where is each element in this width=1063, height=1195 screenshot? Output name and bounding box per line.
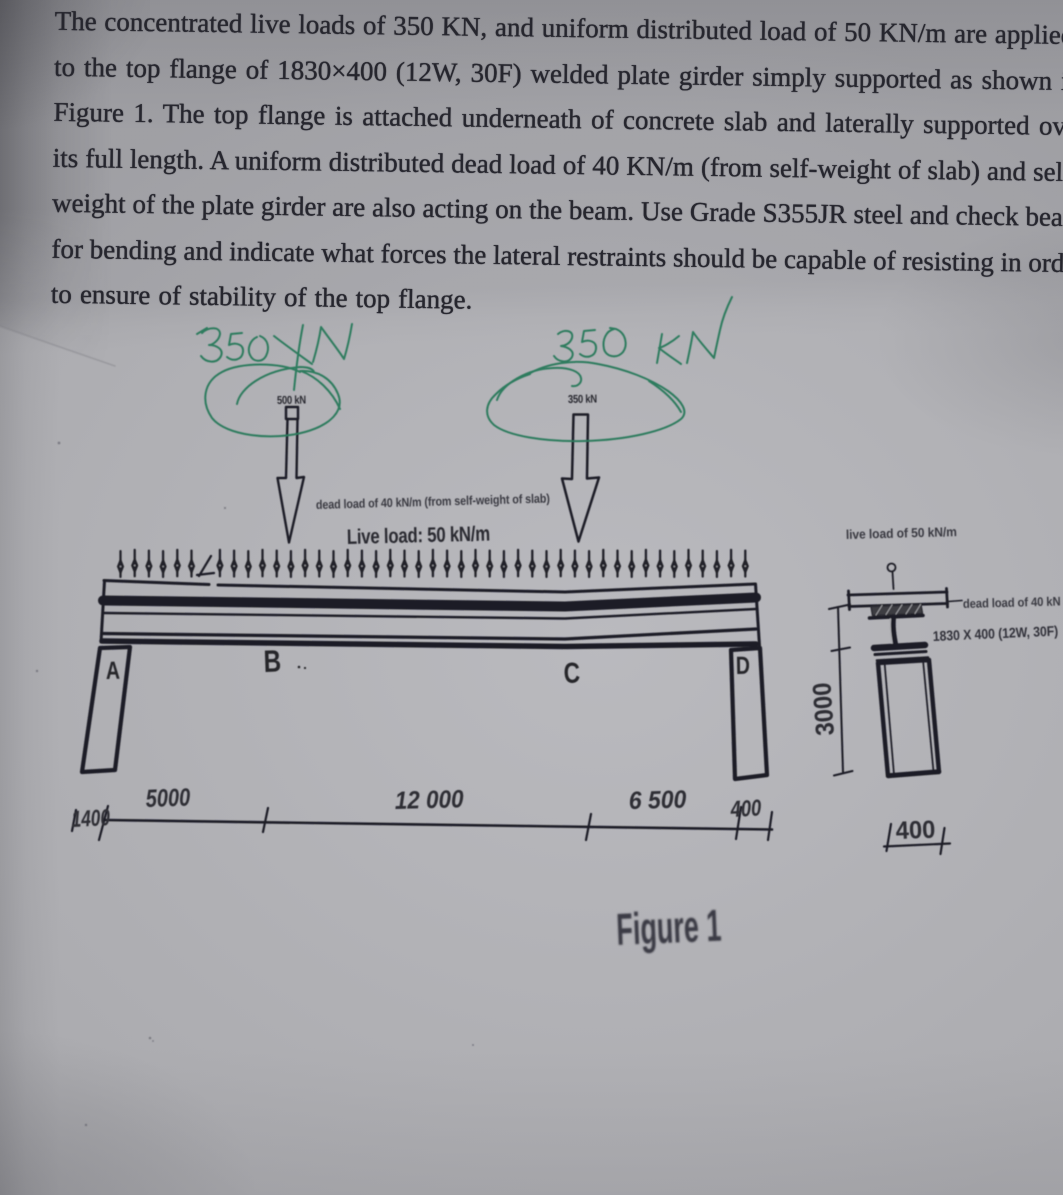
svg-text:400: 400	[729, 796, 762, 823]
svg-text:B: B	[263, 644, 282, 679]
svg-text:12 000: 12 000	[394, 785, 464, 815]
svg-text:5000: 5000	[145, 783, 191, 812]
svg-text:Figure 1: Figure 1	[615, 899, 722, 954]
svg-text:400: 400	[895, 816, 936, 845]
svg-text:A: A	[106, 656, 121, 684]
svg-text:350 kN: 350 kN	[568, 393, 597, 407]
svg-text:live load of 50 kN/m: live load of 50 kN/m	[846, 525, 957, 542]
svg-text:dead load of 40 kN: dead load of 40 kN	[963, 594, 1061, 611]
svg-text:dead load of 40 kN/m (from sel: dead load of 40 kN/m (from self-weight o…	[316, 492, 550, 512]
svg-text:1400: 1400	[71, 806, 111, 833]
svg-text:C: C	[563, 656, 581, 690]
svg-text:Live load: 50 kN/m: Live load: 50 kN/m	[347, 523, 491, 550]
svg-text:3000: 3000	[807, 682, 840, 737]
svg-text:6 500: 6 500	[628, 786, 687, 816]
svg-text:D: D	[736, 651, 751, 679]
svg-text:500 kN: 500 kN	[277, 394, 306, 408]
svg-text:1830 X 400 (12W, 30F): 1830 X 400 (12W, 30F)	[932, 623, 1058, 644]
